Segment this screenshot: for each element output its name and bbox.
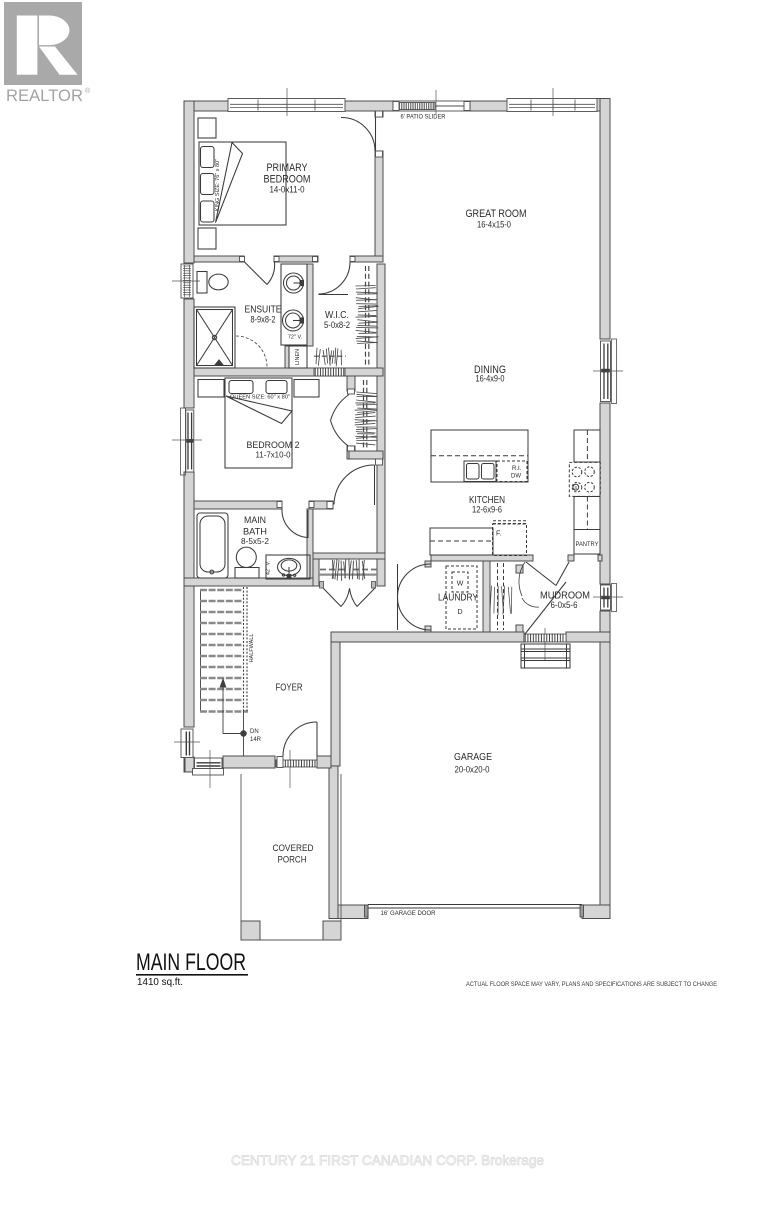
svg-text:PORCH: PORCH — [278, 855, 307, 865]
svg-text:QUEEN SIZE: 60" x 80": QUEEN SIZE: 60" x 80" — [230, 395, 290, 401]
svg-text:8-5x5-2: 8-5x5-2 — [241, 536, 269, 546]
svg-text:BEDROOM 2: BEDROOM 2 — [247, 440, 300, 450]
svg-text:6' PATIO SLIDER: 6' PATIO SLIDER — [401, 115, 447, 121]
svg-text:GARAGE: GARAGE — [454, 751, 492, 763]
svg-text:PANTRY: PANTRY — [576, 541, 600, 548]
svg-text:5-0x8-2: 5-0x8-2 — [324, 320, 350, 330]
svg-text:D: D — [457, 609, 462, 616]
svg-text:GREAT ROOM: GREAT ROOM — [466, 208, 527, 220]
svg-text:DN: DN — [250, 729, 259, 735]
svg-text:S: S — [574, 485, 577, 490]
svg-text:20-0x20-0: 20-0x20-0 — [455, 765, 490, 775]
svg-text:REALTOR: REALTOR — [6, 86, 83, 105]
svg-text:14R: 14R — [250, 737, 262, 743]
svg-text:16-4x15-0: 16-4x15-0 — [477, 220, 511, 230]
svg-text:FOYER: FOYER — [276, 683, 303, 694]
svg-text:CENTURY 21 FIRST CANADIAN CORP: CENTURY 21 FIRST CANADIAN CORP. Brokerag… — [231, 1153, 544, 1168]
svg-text:42" V.: 42" V. — [266, 560, 272, 575]
svg-text:R.I.: R.I. — [512, 466, 522, 472]
svg-text:12-6x9-6: 12-6x9-6 — [472, 505, 502, 515]
svg-text:COVERED: COVERED — [273, 843, 314, 853]
svg-text:8-9x8-2: 8-9x8-2 — [251, 315, 276, 325]
svg-text:11-7x10-0: 11-7x10-0 — [256, 450, 291, 460]
svg-text:DW: DW — [511, 474, 521, 480]
svg-text:1410 sq.ft.: 1410 sq.ft. — [137, 977, 183, 988]
svg-text:LINEN: LINEN — [295, 349, 301, 365]
svg-text:HALFWALL: HALFWALL — [249, 634, 255, 663]
svg-text:F.: F. — [496, 531, 502, 538]
svg-text:LAUNDRY: LAUNDRY — [438, 593, 478, 604]
svg-text:6-0x5-6: 6-0x5-6 — [551, 600, 578, 610]
svg-text:16-4x9-0: 16-4x9-0 — [476, 374, 505, 384]
svg-text:72" V.: 72" V. — [288, 335, 303, 341]
svg-text:14-0x11-0: 14-0x11-0 — [270, 185, 305, 195]
svg-text:®: ® — [85, 87, 91, 95]
svg-text:PRIMARY: PRIMARY — [267, 162, 309, 174]
svg-text:MAIN: MAIN — [244, 515, 266, 526]
svg-text:16' GARAGE DOOR: 16' GARAGE DOOR — [381, 911, 437, 917]
svg-text:KING SIZE: 76" x 80": KING SIZE: 76" x 80" — [215, 159, 221, 211]
svg-text:W: W — [457, 581, 464, 588]
svg-text:ACTUAL FLOOR SPACE MAY VARY, P: ACTUAL FLOOR SPACE MAY VARY, PLANS AND S… — [466, 981, 717, 988]
svg-text:MAIN FLOOR: MAIN FLOOR — [136, 949, 246, 976]
